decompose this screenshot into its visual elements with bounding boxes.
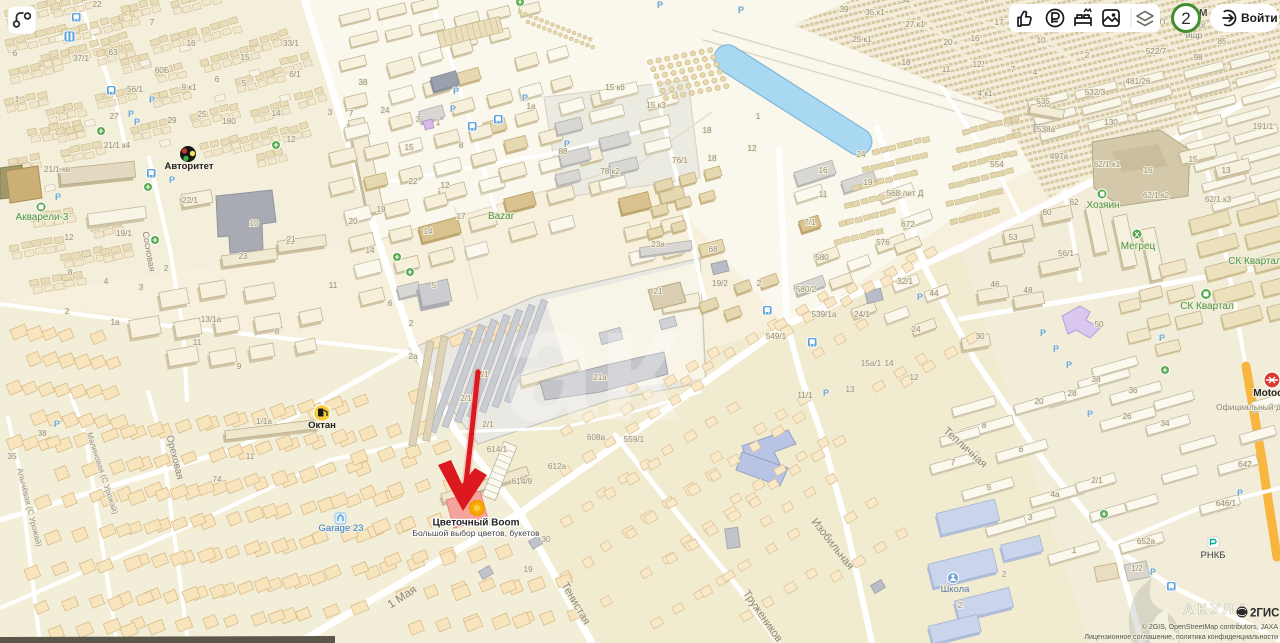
svg-text:2: 2 bbox=[1181, 9, 1190, 28]
svg-text:522/7: 522/7 bbox=[1146, 47, 1167, 56]
svg-text:15: 15 bbox=[1188, 155, 1198, 164]
svg-text:78 к2: 78 к2 bbox=[600, 167, 620, 176]
svg-text:21: 21 bbox=[286, 235, 296, 244]
svg-text:180: 180 bbox=[222, 117, 236, 126]
svg-text:39: 39 bbox=[839, 5, 849, 14]
svg-text:1а: 1а bbox=[110, 318, 120, 327]
svg-text:P: P bbox=[1159, 333, 1165, 343]
svg-text:60Б: 60Б bbox=[155, 66, 169, 75]
svg-text:P: P bbox=[657, 0, 663, 10]
svg-text:481/26: 481/26 bbox=[1125, 77, 1150, 86]
svg-text:7/1: 7/1 bbox=[804, 218, 816, 227]
svg-text:Motoc: Motoc bbox=[1253, 388, 1280, 399]
svg-text:46: 46 bbox=[990, 280, 1000, 289]
svg-text:35: 35 bbox=[7, 452, 17, 461]
svg-text:11/1: 11/1 bbox=[797, 391, 813, 400]
svg-text:44: 44 bbox=[929, 289, 939, 298]
svg-text:Лицензионное соглашение, полит: Лицензионное соглашение, политика конфид… bbox=[1084, 634, 1278, 641]
svg-text:Bazar: Bazar bbox=[488, 211, 515, 222]
svg-text:53: 53 bbox=[1008, 233, 1018, 242]
svg-text:15а/1: 15а/1 bbox=[861, 359, 882, 368]
svg-text:15: 15 bbox=[240, 53, 250, 62]
svg-text:13/1а: 13/1а bbox=[201, 315, 222, 324]
svg-text:535: 535 bbox=[1036, 97, 1050, 106]
svg-text:33/1: 33/1 bbox=[283, 39, 299, 48]
svg-text:14: 14 bbox=[365, 246, 375, 255]
svg-text:98: 98 bbox=[1193, 53, 1203, 62]
svg-text:24: 24 bbox=[856, 150, 866, 159]
svg-text:62/1 к1: 62/1 к1 bbox=[1094, 160, 1121, 169]
svg-text:62/1 к2: 62/1 к2 bbox=[1143, 191, 1170, 200]
svg-text:4а: 4а bbox=[1050, 490, 1060, 499]
svg-text:СК Квартал: СК Квартал bbox=[1180, 301, 1234, 312]
svg-text:7: 7 bbox=[150, 18, 155, 27]
svg-text:28: 28 bbox=[1067, 389, 1077, 398]
svg-text:Акварели-3: Акварели-3 bbox=[16, 212, 69, 223]
svg-text:8: 8 bbox=[459, 141, 464, 150]
svg-text:2: 2 bbox=[1002, 570, 1007, 579]
svg-text:22/1: 22/1 bbox=[182, 196, 198, 205]
svg-text:20: 20 bbox=[1034, 397, 1044, 406]
svg-text:1а: 1а bbox=[526, 102, 536, 111]
svg-text:580: 580 bbox=[815, 253, 829, 262]
svg-text:672: 672 bbox=[901, 220, 915, 229]
svg-text:2: 2 bbox=[65, 307, 70, 316]
svg-text:35 к1: 35 к1 bbox=[865, 8, 885, 17]
svg-text:1/2: 1/2 bbox=[1131, 564, 1143, 573]
svg-text:3: 3 bbox=[328, 108, 333, 117]
svg-text:62/1 к3: 62/1 к3 bbox=[1205, 195, 1232, 204]
svg-text:1/1а: 1/1а bbox=[256, 417, 272, 426]
svg-text:5: 5 bbox=[432, 281, 437, 290]
svg-text:16: 16 bbox=[1143, 166, 1153, 175]
svg-text:РНКБ: РНКБ bbox=[1201, 550, 1226, 561]
svg-text:2ГИС: 2ГИС bbox=[1250, 608, 1280, 620]
svg-text:76/1: 76/1 bbox=[672, 156, 688, 165]
svg-text:20: 20 bbox=[943, 38, 953, 47]
svg-text:17: 17 bbox=[994, 18, 1004, 27]
svg-text:554: 554 bbox=[990, 160, 1004, 169]
svg-text:7: 7 bbox=[1011, 65, 1016, 74]
svg-text:P: P bbox=[149, 95, 155, 105]
svg-text:9 к1: 9 к1 bbox=[182, 83, 197, 92]
svg-text:23: 23 bbox=[238, 252, 248, 261]
svg-text:© 2GIS, OpenStreetMap contribu: © 2GIS, OpenStreetMap contributors, JAXA bbox=[1142, 623, 1279, 631]
svg-text:12: 12 bbox=[440, 181, 450, 190]
svg-text:2: 2 bbox=[757, 279, 762, 288]
svg-text:29: 29 bbox=[167, 116, 177, 125]
svg-text:25 к1: 25 к1 bbox=[852, 35, 872, 44]
svg-text:2: 2 bbox=[1085, 51, 1090, 60]
svg-text:30: 30 bbox=[541, 535, 551, 544]
svg-text:2/1: 2/1 bbox=[460, 394, 472, 403]
svg-text:539/1а: 539/1а bbox=[811, 310, 836, 319]
svg-text:56/1: 56/1 bbox=[1058, 249, 1074, 258]
svg-text:24: 24 bbox=[380, 106, 390, 115]
svg-text:Цветочный Boom: Цветочный Boom bbox=[432, 518, 519, 529]
svg-text:85: 85 bbox=[1217, 37, 1227, 46]
svg-text:30: 30 bbox=[975, 332, 985, 341]
svg-text:СК Квартал: СК Квартал bbox=[1228, 256, 1280, 267]
svg-text:23а: 23а bbox=[651, 240, 665, 249]
svg-text:12: 12 bbox=[747, 144, 757, 153]
svg-text:7: 7 bbox=[951, 458, 956, 467]
svg-text:12: 12 bbox=[286, 135, 296, 144]
svg-text:14: 14 bbox=[884, 359, 894, 368]
svg-text:Октан: Октан bbox=[308, 420, 336, 431]
svg-text:580/2: 580/2 bbox=[796, 285, 817, 294]
svg-text:642: 642 bbox=[1238, 460, 1252, 469]
svg-text:612а: 612а bbox=[548, 462, 567, 471]
svg-text:130: 130 bbox=[1104, 118, 1118, 127]
svg-text:Garage 23: Garage 23 bbox=[319, 523, 364, 534]
svg-text:19/1: 19/1 bbox=[116, 229, 132, 238]
svg-text:17: 17 bbox=[456, 212, 466, 221]
svg-text:3: 3 bbox=[416, 115, 421, 124]
svg-text:37/1: 37/1 bbox=[73, 54, 89, 63]
svg-text:18: 18 bbox=[901, 58, 911, 67]
svg-text:34: 34 bbox=[1160, 419, 1170, 428]
svg-text:P: P bbox=[134, 117, 140, 127]
svg-text:10: 10 bbox=[1036, 36, 1046, 45]
svg-text:14: 14 bbox=[271, 109, 281, 118]
svg-text:1: 1 bbox=[436, 118, 441, 127]
svg-text:27 к1: 27 к1 bbox=[905, 20, 925, 29]
svg-text:P: P bbox=[1066, 360, 1072, 370]
svg-text:24/1: 24/1 bbox=[854, 310, 870, 319]
svg-text:P: P bbox=[564, 139, 570, 149]
svg-text:11: 11 bbox=[193, 338, 202, 347]
svg-text:22: 22 bbox=[408, 177, 418, 186]
svg-text:Большой выбор цветов, букетов: Большой выбор цветов, букетов bbox=[412, 528, 540, 538]
svg-text:6: 6 bbox=[13, 49, 18, 58]
svg-text:P: P bbox=[453, 86, 459, 96]
svg-text:11: 11 bbox=[942, 65, 951, 74]
svg-text:21/1 к4: 21/1 к4 bbox=[104, 141, 131, 150]
svg-text:63: 63 bbox=[108, 48, 118, 57]
svg-text:576: 576 bbox=[876, 238, 890, 247]
svg-text:P: P bbox=[1040, 328, 1046, 338]
svg-text:12: 12 bbox=[909, 373, 919, 382]
svg-text:16: 16 bbox=[970, 34, 980, 43]
svg-text:19: 19 bbox=[523, 565, 533, 574]
svg-text:Школа: Школа bbox=[941, 584, 971, 595]
svg-text:38: 38 bbox=[358, 78, 368, 87]
svg-text:538а: 538а bbox=[1037, 125, 1056, 134]
svg-text:1: 1 bbox=[756, 112, 761, 121]
svg-text:12: 12 bbox=[972, 60, 982, 69]
svg-text:25: 25 bbox=[197, 110, 207, 119]
svg-text:38: 38 bbox=[37, 429, 47, 438]
svg-text:11: 11 bbox=[246, 452, 255, 461]
svg-text:2а: 2а bbox=[408, 352, 418, 361]
svg-text:P: P bbox=[522, 93, 528, 103]
svg-text:P: P bbox=[917, 292, 923, 302]
svg-text:11: 11 bbox=[819, 190, 828, 199]
svg-text:4: 4 bbox=[1033, 68, 1038, 77]
svg-text:652а: 652а bbox=[1137, 537, 1156, 546]
svg-text:ак: ак bbox=[505, 271, 680, 455]
svg-text:1: 1 bbox=[1072, 546, 1077, 555]
svg-text:568 лит Д: 568 лит Д bbox=[887, 189, 924, 198]
svg-text:36: 36 bbox=[1128, 386, 1138, 395]
svg-text:Авторитет: Авторитет bbox=[164, 161, 213, 172]
svg-text:3: 3 bbox=[139, 283, 144, 292]
svg-text:32/1: 32/1 bbox=[897, 277, 913, 286]
svg-text:614/9: 614/9 bbox=[512, 477, 533, 486]
svg-text:34: 34 bbox=[900, 0, 910, 5]
svg-text:50: 50 bbox=[1094, 320, 1104, 329]
svg-text:Хозяин: Хозяин bbox=[1086, 200, 1119, 211]
svg-text:P: P bbox=[55, 192, 61, 202]
svg-text:2: 2 bbox=[164, 264, 169, 273]
svg-text:48: 48 bbox=[1023, 286, 1033, 295]
svg-text:12: 12 bbox=[64, 233, 74, 242]
svg-text:497а: 497а bbox=[1050, 152, 1069, 161]
svg-text:16: 16 bbox=[186, 39, 196, 48]
svg-text:2: 2 bbox=[958, 601, 963, 610]
svg-text:532/3: 532/3 bbox=[1085, 88, 1106, 97]
svg-text:Войти: Войти bbox=[1241, 11, 1278, 25]
svg-text:P: P bbox=[1087, 409, 1093, 419]
svg-text:4 к1: 4 к1 bbox=[978, 89, 993, 98]
svg-text:11: 11 bbox=[329, 281, 338, 290]
svg-text:21/1 кв: 21/1 кв bbox=[44, 165, 70, 174]
svg-text:6/1: 6/1 bbox=[289, 70, 301, 79]
svg-text:7: 7 bbox=[349, 109, 354, 118]
svg-text:13: 13 bbox=[845, 385, 855, 394]
svg-text:Мегрец: Мегрец bbox=[1121, 241, 1156, 252]
svg-text:1: 1 bbox=[15, 95, 20, 104]
svg-text:26: 26 bbox=[1122, 412, 1132, 421]
svg-text:6: 6 bbox=[1019, 445, 1024, 454]
svg-text:3: 3 bbox=[1028, 513, 1033, 522]
svg-text:2/1: 2/1 bbox=[482, 420, 494, 429]
svg-text:62: 62 bbox=[1069, 198, 1079, 207]
svg-text:549/1: 549/1 bbox=[766, 332, 787, 341]
svg-text:5: 5 bbox=[242, 79, 247, 88]
svg-text:19: 19 bbox=[863, 178, 873, 187]
svg-text:60: 60 bbox=[1042, 208, 1052, 217]
svg-text:16: 16 bbox=[818, 166, 828, 175]
svg-text:74: 74 bbox=[212, 475, 222, 484]
svg-text:P: P bbox=[169, 175, 175, 185]
svg-text:15 к6: 15 к6 bbox=[605, 83, 625, 92]
svg-text:27: 27 bbox=[109, 112, 119, 121]
svg-text:22: 22 bbox=[92, 0, 102, 9]
svg-text:20: 20 bbox=[348, 217, 358, 226]
svg-text:68: 68 bbox=[708, 245, 718, 254]
svg-text:2/1: 2/1 bbox=[1091, 476, 1103, 485]
svg-text:13: 13 bbox=[1221, 166, 1231, 175]
svg-text:2: 2 bbox=[409, 319, 414, 328]
svg-text:9: 9 bbox=[237, 362, 242, 371]
svg-text:P: P bbox=[1150, 567, 1156, 577]
svg-text:19: 19 bbox=[376, 205, 386, 214]
svg-text:56/1: 56/1 bbox=[127, 85, 143, 94]
svg-text:P: P bbox=[1237, 488, 1243, 498]
svg-text:Официальный д: Официальный д bbox=[1216, 402, 1280, 412]
svg-text:8: 8 bbox=[982, 421, 987, 430]
svg-text:646/1: 646/1 bbox=[1216, 499, 1237, 508]
svg-text:4: 4 bbox=[104, 277, 109, 286]
svg-text:6: 6 bbox=[388, 299, 393, 308]
svg-text:24: 24 bbox=[911, 325, 921, 334]
svg-text:38: 38 bbox=[1091, 375, 1101, 384]
svg-text:P: P bbox=[738, 5, 744, 15]
svg-text:6: 6 bbox=[215, 75, 220, 84]
svg-text:15: 15 bbox=[404, 143, 414, 152]
svg-text:19/2: 19/2 bbox=[712, 279, 728, 288]
svg-text:14: 14 bbox=[423, 227, 433, 236]
svg-text:P: P bbox=[823, 388, 829, 398]
svg-text:15 к3: 15 к3 bbox=[646, 101, 666, 110]
svg-text:10: 10 bbox=[249, 219, 259, 228]
svg-text:P: P bbox=[54, 419, 60, 429]
svg-text:P: P bbox=[450, 104, 456, 114]
svg-text:8: 8 bbox=[68, 268, 73, 277]
svg-text:P: P bbox=[1053, 344, 1059, 354]
svg-text:18: 18 bbox=[702, 126, 712, 135]
svg-text:5: 5 bbox=[987, 483, 992, 492]
svg-text:191/1: 191/1 bbox=[1253, 122, 1274, 131]
svg-text:8: 8 bbox=[275, 327, 280, 336]
svg-text:18: 18 bbox=[707, 154, 717, 163]
